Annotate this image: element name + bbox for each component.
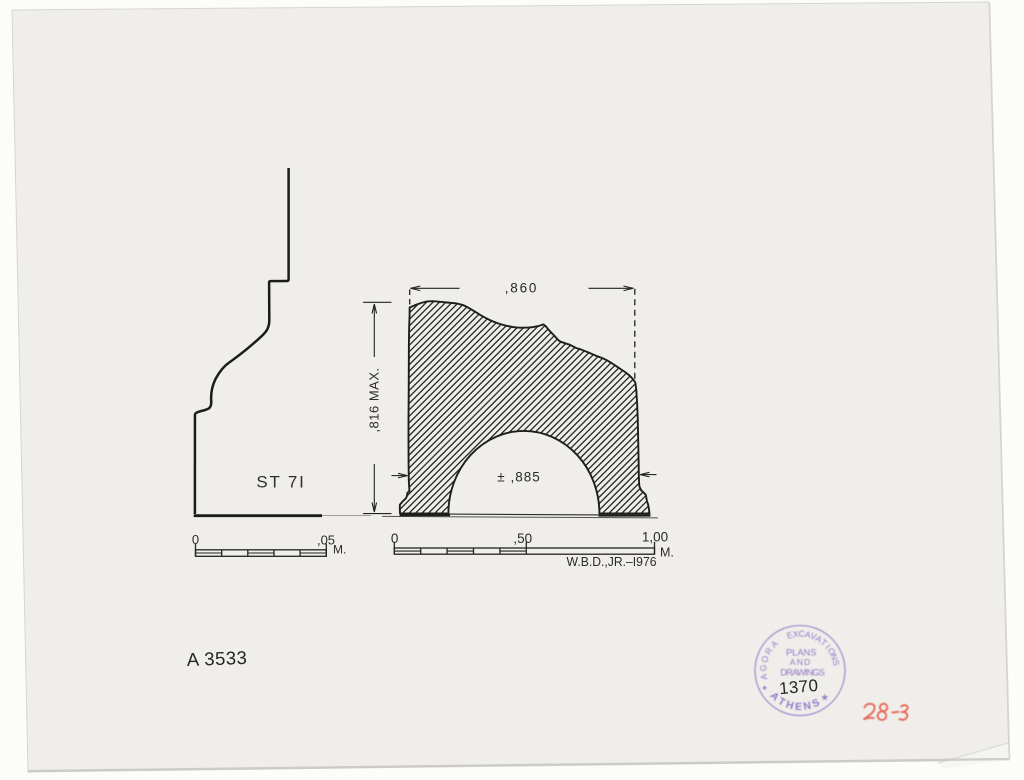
svg-text:★: ★ — [821, 693, 830, 704]
svg-text:,860: ,860 — [505, 281, 538, 296]
svg-text:1,00: 1,00 — [642, 530, 668, 545]
svg-text:AND: AND — [790, 657, 811, 667]
svg-text:± ,885: ± ,885 — [497, 470, 540, 485]
svg-text:E: E — [795, 701, 803, 713]
svg-text:M.: M. — [333, 543, 346, 557]
svg-text:DRAWINGS: DRAWINGS — [780, 667, 825, 677]
svg-text:G: G — [758, 664, 768, 672]
svg-text:,816 MAX.: ,816 MAX. — [367, 367, 382, 432]
svg-text:A 3533: A 3533 — [186, 647, 247, 670]
svg-text:,50: ,50 — [513, 531, 532, 546]
svg-text:0: 0 — [192, 532, 199, 547]
svg-text:1370: 1370 — [778, 676, 819, 698]
svg-text:✦: ✦ — [761, 683, 769, 693]
svg-text:W.B.D.,JR.–I976: W.B.D.,JR.–I976 — [567, 554, 657, 569]
svg-text:0: 0 — [391, 531, 399, 546]
svg-text:M.: M. — [660, 545, 674, 559]
svg-text:ST 7I: ST 7I — [256, 473, 305, 492]
